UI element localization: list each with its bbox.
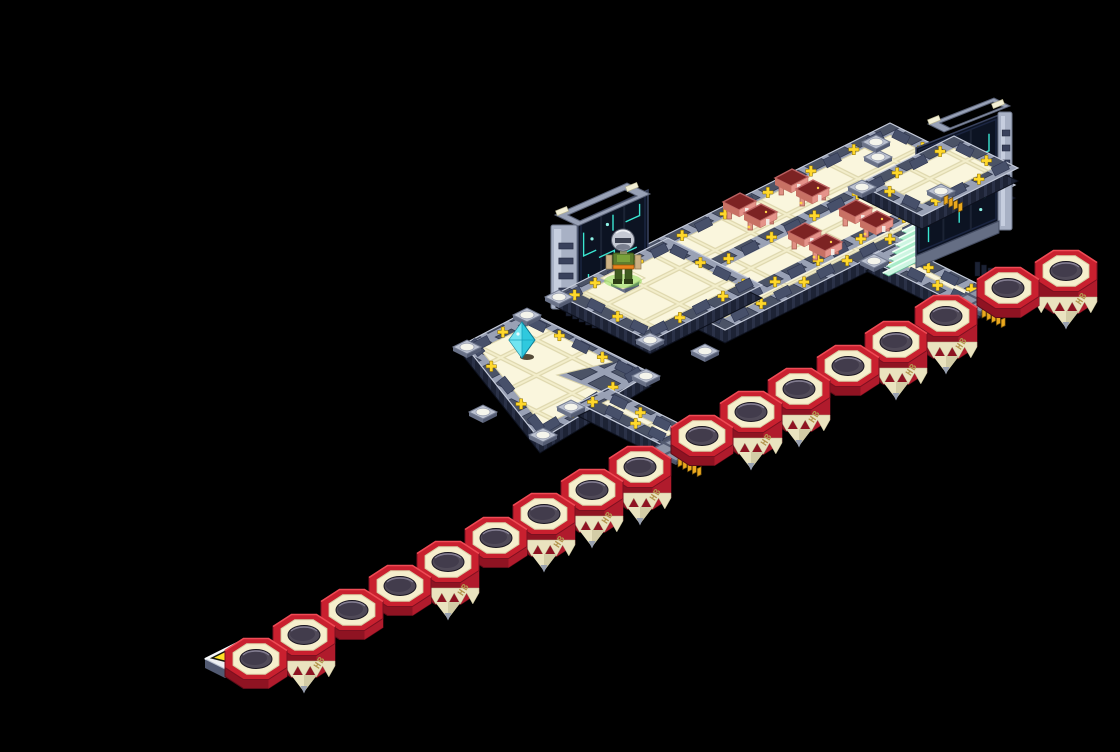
octagon-platform[interactable]: HB: [1035, 251, 1097, 330]
corner-light: [536, 431, 550, 439]
octagon-platform[interactable]: [671, 416, 733, 466]
corner-light: [869, 138, 883, 146]
corner-light: [698, 347, 712, 355]
corner-light: [460, 343, 474, 351]
corner-light: [520, 311, 534, 319]
corner-light: [855, 183, 869, 191]
corner-light: [867, 257, 881, 265]
octagon-platform[interactable]: [977, 268, 1039, 318]
corner-light-block: [469, 405, 497, 423]
corner-light: [552, 293, 566, 301]
corner-light: [643, 336, 657, 344]
corner-light-block: [691, 344, 719, 362]
character-glow: [604, 274, 642, 288]
corner-light: [476, 408, 490, 416]
octagon-platform[interactable]: [225, 639, 287, 689]
corner-light: [564, 403, 578, 411]
corner-light: [871, 153, 885, 161]
corner-light: [934, 187, 948, 195]
game-viewport: HBHBHBHBHBHBHBHBHBHB: [0, 0, 1120, 752]
character-belt: [613, 265, 634, 269]
game-scene: HBHBHBHBHBHBHBHBHBHB: [0, 0, 1120, 752]
corner-light: [639, 372, 653, 380]
